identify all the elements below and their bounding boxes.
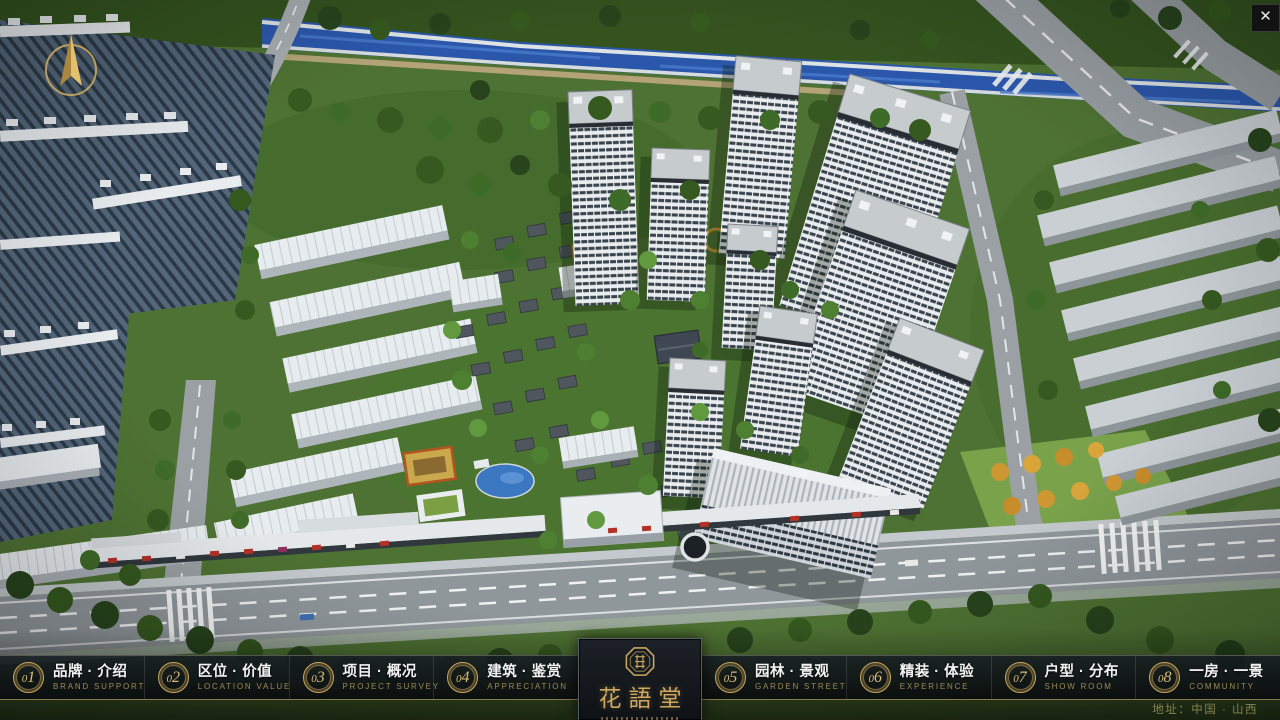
- nav-item-views[interactable]: 08 一房 · 一景 COMMUNITY: [1135, 656, 1280, 699]
- close-button[interactable]: ✕: [1251, 4, 1280, 32]
- nav-label: 建筑 · 鉴赏: [487, 664, 568, 681]
- nav-sublabel: PROJECT SURVEY: [343, 682, 434, 691]
- nav-label: 区位 · 价值: [198, 664, 289, 681]
- nav-item-interior[interactable]: 06 精装 · 体验 EXPERIENCE: [846, 656, 991, 699]
- nav-label: 精装 · 体验: [900, 664, 974, 681]
- nav-badge: 03: [303, 662, 334, 693]
- nav-badge: 07: [1005, 662, 1036, 693]
- compass-north-icon: [71, 34, 82, 86]
- nav-badge: 01: [13, 662, 44, 693]
- nav-item-floorplan[interactable]: 07 户型 · 分布 SHOW ROOM: [991, 656, 1136, 699]
- nav-badge: 08: [1149, 662, 1180, 693]
- brand-logo-panel: 花語堂: [578, 638, 702, 720]
- address-text: 地址：中国 · 山西: [1152, 701, 1258, 717]
- nav-item-garden[interactable]: 05 园林 · 景观 GARDEN STREET: [702, 656, 846, 699]
- nav-group-left: 01 品牌 · 介绍 BRAND SUPPORT 02 区位 · 价值 LOCA…: [0, 656, 578, 699]
- vignette: [0, 0, 1280, 720]
- nav-item-brand[interactable]: 01 品牌 · 介绍 BRAND SUPPORT: [0, 656, 144, 699]
- nav-label: 品牌 · 介绍: [53, 664, 144, 681]
- nav-badge: 05: [715, 662, 746, 693]
- nav-badge: 06: [860, 662, 891, 693]
- nav-item-architecture[interactable]: 04 建筑 · 鉴赏 APPRECIATION: [433, 656, 578, 699]
- nav-label: 项目 · 概况: [343, 664, 434, 681]
- nav-sublabel: BRAND SUPPORT: [53, 682, 144, 691]
- nav-sublabel: EXPERIENCE: [900, 682, 974, 691]
- nav-badge: 04: [447, 662, 478, 693]
- nav-label: 户型 · 分布: [1045, 664, 1119, 681]
- app-window: ✕ 01 品牌 · 介绍 BRAND SUPPORT 02 区位 · 价值 LO…: [0, 0, 1280, 720]
- nav-item-location[interactable]: 02 区位 · 价值 LOCATION VALUE: [144, 656, 289, 699]
- nav-badge: 02: [158, 662, 189, 693]
- nav-item-project[interactable]: 03 项目 · 概况 PROJECT SURVEY: [289, 656, 434, 699]
- nav-group-right: 05 园林 · 景观 GARDEN STREET 06 精装 · 体验 EXPE…: [702, 656, 1280, 699]
- nav-label: 园林 · 景观: [755, 664, 846, 681]
- nav-sublabel: SHOW ROOM: [1045, 682, 1119, 691]
- compass[interactable]: [40, 28, 102, 104]
- nav-sublabel: LOCATION VALUE: [198, 682, 289, 691]
- bottom-navbar: 01 品牌 · 介绍 BRAND SUPPORT 02 区位 · 价值 LOCA…: [0, 655, 1280, 700]
- masterplan-render[interactable]: [0, 0, 1280, 720]
- nav-sublabel: APPRECIATION: [487, 682, 568, 691]
- nav-label: 一房 · 一景: [1189, 664, 1263, 681]
- brand-seal-icon: [624, 646, 656, 677]
- nav-sublabel: GARDEN STREET: [755, 682, 846, 691]
- brand-name: 花語堂: [592, 679, 689, 713]
- nav-sublabel: COMMUNITY: [1189, 682, 1263, 691]
